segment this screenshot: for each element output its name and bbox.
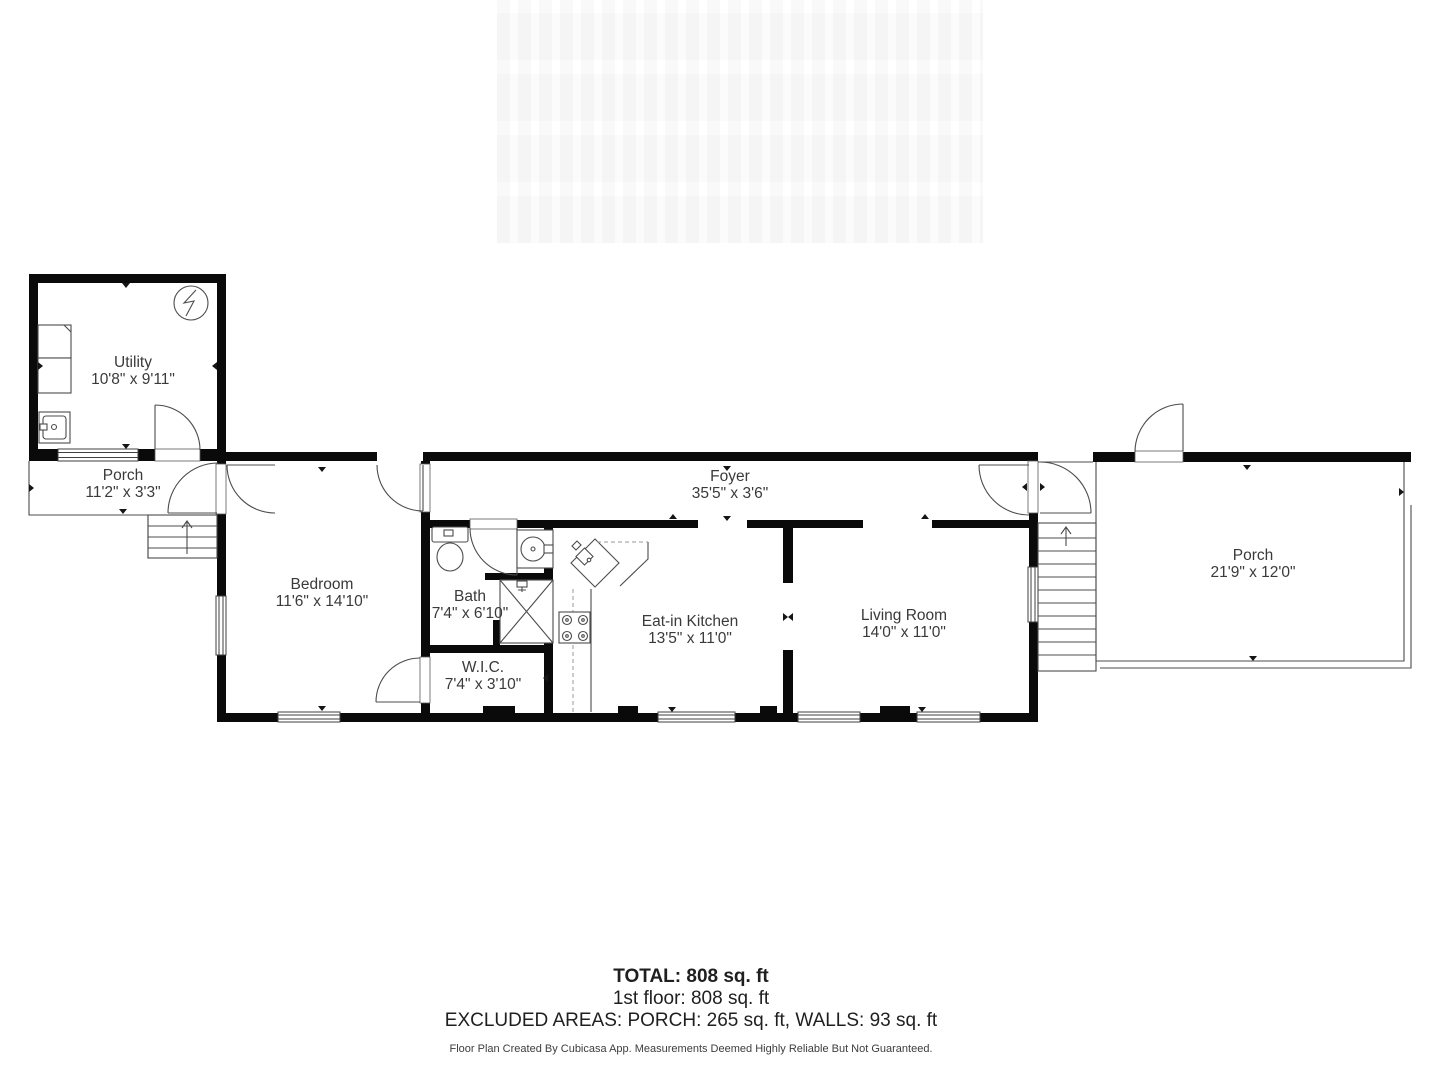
toilet-icon bbox=[432, 527, 468, 571]
water-heater-icon bbox=[174, 286, 208, 320]
room-label-living-room: Living Room 14'0" x 11'0" bbox=[861, 607, 947, 641]
room-dimensions: 11'2" x 3'3" bbox=[85, 484, 160, 501]
floor-plan-drawing bbox=[0, 0, 1440, 1080]
room-name: Porch bbox=[1210, 547, 1295, 564]
door-symbols bbox=[155, 404, 1183, 702]
room-name: Living Room bbox=[861, 607, 947, 624]
room-name: Bath bbox=[432, 588, 508, 605]
left-stairs bbox=[148, 515, 217, 558]
room-label-bath: Bath 7'4" x 6'10" bbox=[432, 588, 508, 622]
room-dimensions: 21'9" x 12'0" bbox=[1210, 564, 1295, 581]
total-area-text: TOTAL: 808 sq. ft bbox=[0, 966, 1382, 988]
summary-block: TOTAL: 808 sq. ft 1st floor: 808 sq. ft … bbox=[0, 966, 1382, 1056]
room-dimensions: 13'5" x 11'0" bbox=[642, 630, 739, 647]
room-label-utility: Utility 10'8" x 9'11" bbox=[91, 354, 175, 388]
room-label-bedroom: Bedroom 11'6" x 14'10" bbox=[276, 576, 368, 610]
room-name: Eat-in Kitchen bbox=[642, 613, 739, 630]
floor-area-text: 1st floor: 808 sq. ft bbox=[0, 988, 1382, 1010]
room-name: Foyer bbox=[692, 468, 768, 485]
disclaimer-text: Floor Plan Created By Cubicasa App. Meas… bbox=[0, 1043, 1382, 1056]
room-dimensions: 35'5" x 3'6" bbox=[692, 485, 768, 502]
room-dimensions: 11'6" x 14'10" bbox=[276, 593, 368, 610]
room-name: W.I.C. bbox=[445, 659, 521, 676]
laundry-sink-icon bbox=[39, 412, 70, 443]
room-label-porch-left: Porch 11'2" x 3'3" bbox=[85, 467, 160, 501]
excluded-areas-text: EXCLUDED AREAS: PORCH: 265 sq. ft, WALLS… bbox=[0, 1010, 1382, 1032]
room-dimensions: 7'4" x 6'10" bbox=[432, 605, 508, 622]
room-name: Bedroom bbox=[276, 576, 368, 593]
room-label-kitchen: Eat-in Kitchen 13'5" x 11'0" bbox=[642, 613, 739, 647]
floor-plan-page: Utility 10'8" x 9'11" Porch 11'2" x 3'3"… bbox=[0, 0, 1440, 1080]
room-label-wic: W.I.C. 7'4" x 3'10" bbox=[445, 659, 521, 693]
bath-sink-icon bbox=[517, 530, 553, 568]
room-name: Porch bbox=[85, 467, 160, 484]
room-name: Utility bbox=[91, 354, 175, 371]
stove-icon bbox=[559, 612, 590, 643]
room-dimensions: 10'8" x 9'11" bbox=[91, 371, 175, 388]
room-dimensions: 14'0" x 11'0" bbox=[861, 624, 947, 641]
room-label-foyer: Foyer 35'5" x 3'6" bbox=[692, 468, 768, 502]
washer-dryer-icon bbox=[38, 325, 71, 393]
room-label-porch-right: Porch 21'9" x 12'0" bbox=[1210, 547, 1295, 581]
room-dimensions: 7'4" x 3'10" bbox=[445, 676, 521, 693]
